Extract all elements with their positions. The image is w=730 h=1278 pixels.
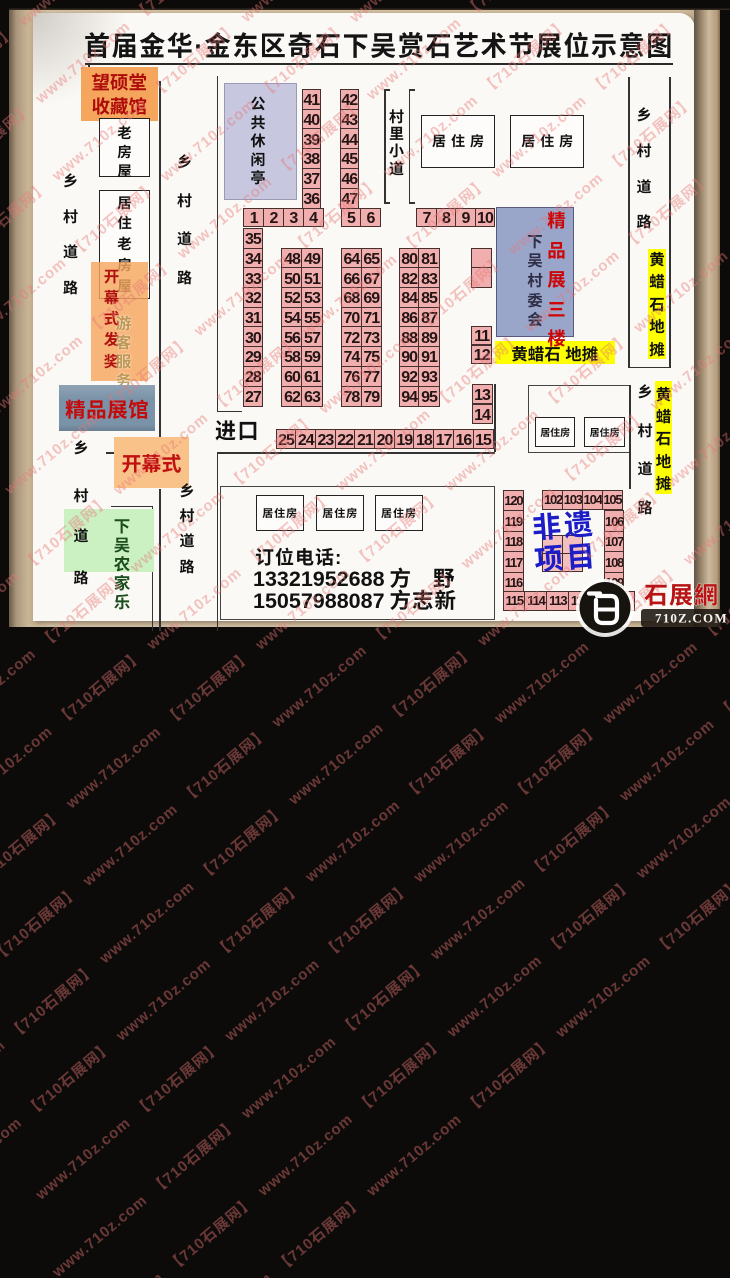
svg-text:石展網: 石展網 <box>644 576 719 611</box>
svg-text:710Z.COM: 710Z.COM <box>655 608 728 627</box>
